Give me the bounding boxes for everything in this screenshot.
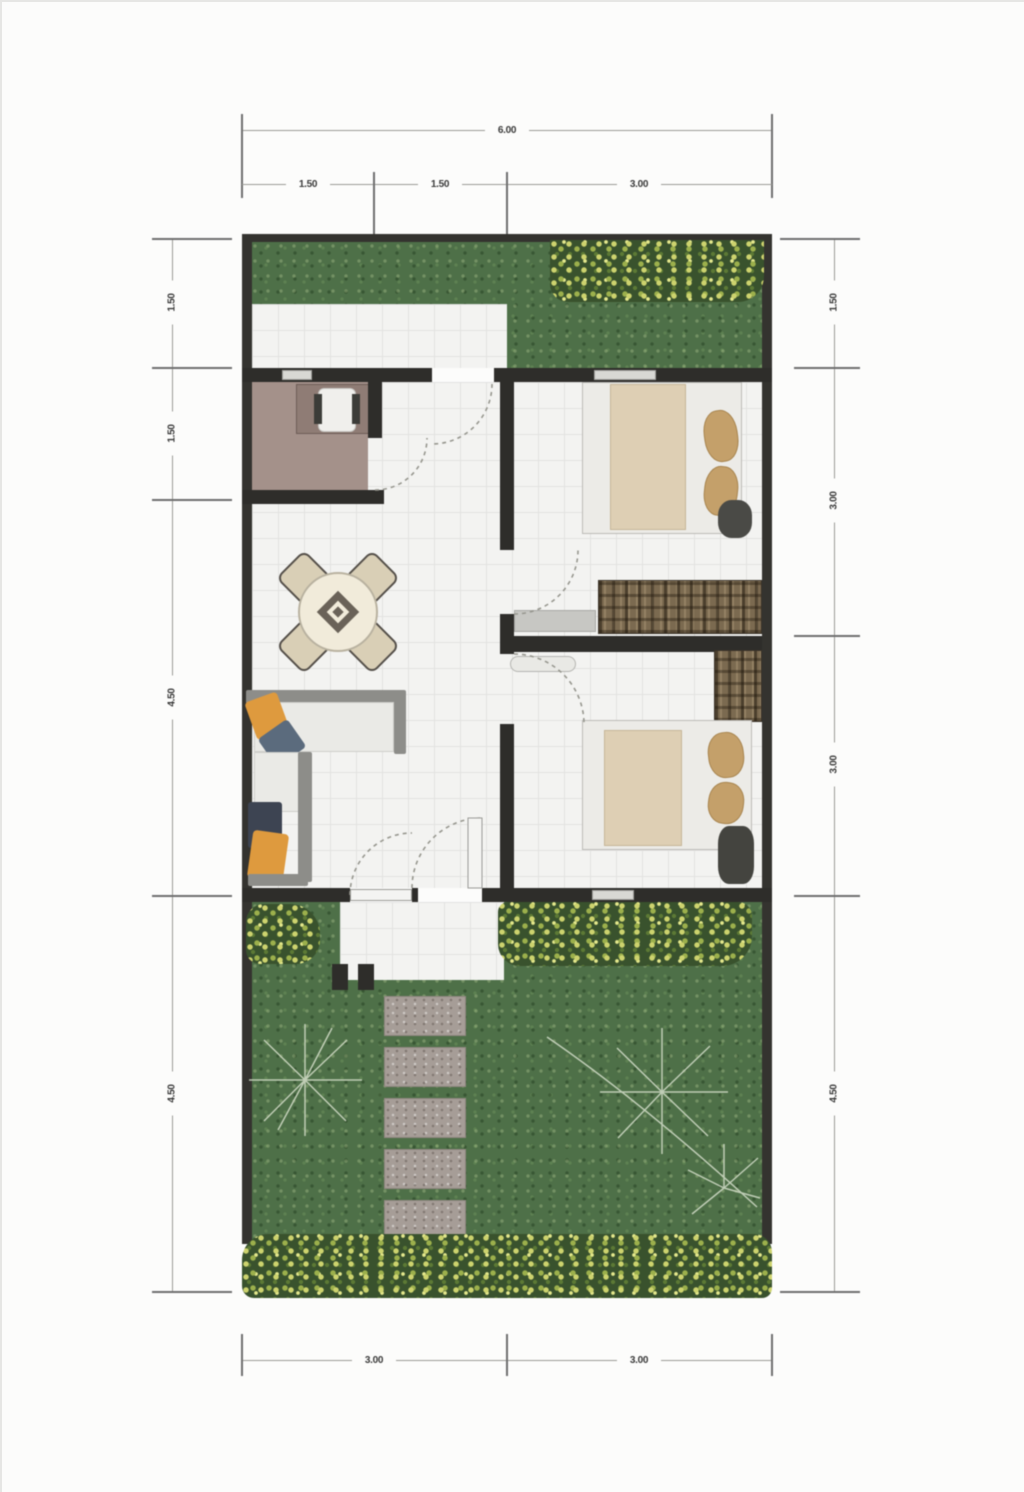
dim-bottom-seg1-label: 3.00 (352, 1354, 396, 1367)
bedroom1-door-swing-icon (514, 550, 578, 614)
entry-door-leaf (468, 818, 482, 888)
dim-left-seg3-label: 4.50 (166, 676, 179, 720)
dim-bottom-tick-left (241, 1334, 243, 1376)
plant-branch-line (547, 1037, 757, 1207)
dim-right-seg1-label: 1.50 (828, 281, 841, 325)
floor-plan-scene: 6.00 1.50 1.50 3.00 3.00 3.00 1.50 1.50 … (2, 2, 1024, 1492)
dim-top-seg2-label: 1.50 (418, 178, 462, 191)
floor-plan-page: 6.00 1.50 1.50 3.00 3.00 3.00 1.50 1.50 … (0, 0, 1024, 1492)
dim-bottom-tick-mid (506, 1334, 508, 1376)
dim-left-tick-4 (152, 895, 232, 897)
dim-left-tick-1 (152, 238, 232, 240)
dim-left-tick-2 (152, 367, 232, 369)
back-door-swing-icon (432, 384, 492, 444)
dim-left-seg1-label: 1.50 (166, 281, 179, 325)
dim-top-tick-2 (506, 172, 508, 234)
dim-top-total-label: 6.00 (485, 124, 529, 137)
overlay-drawing (2, 2, 1024, 1492)
dim-right-seg3-label: 3.00 (828, 743, 841, 787)
garden-plant-sketches (249, 1024, 760, 1214)
dim-left-seg2-label: 1.50 (166, 412, 179, 456)
bedroom2-door-swing-icon (514, 654, 584, 724)
dim-right-tick-4 (794, 895, 860, 897)
dim-right-tick-5 (780, 1291, 860, 1293)
dim-left-seg4-label: 4.50 (166, 1072, 179, 1116)
dim-top-seg3-label: 3.00 (617, 178, 661, 191)
dim-right-tick-3 (794, 635, 860, 637)
dim-top-end-tick-left (241, 114, 243, 198)
dim-right-seg2-label: 3.00 (828, 479, 841, 523)
dim-left-tick-3 (152, 499, 232, 501)
deskroom-door-swing-icon (375, 438, 427, 490)
dim-bottom-seg2-label: 3.00 (617, 1354, 661, 1367)
plant-sketch-left-icon (249, 1024, 362, 1136)
dim-right-seg4-label: 4.50 (828, 1072, 841, 1116)
dim-left-line (172, 239, 173, 1292)
dim-top-seg1-label: 1.50 (286, 178, 330, 191)
dim-right-tick-1 (780, 238, 860, 240)
plant-sketch-right-icon (600, 1028, 728, 1154)
door-swing-arcs (350, 384, 584, 895)
dim-top-tick-1 (373, 172, 375, 234)
terrace-door-swing-icon (350, 833, 412, 895)
dim-top-end-tick-right (771, 114, 773, 198)
dim-bottom-tick-right (771, 1334, 773, 1376)
dim-right-tick-2 (794, 367, 860, 369)
dim-left-tick-5 (152, 1291, 232, 1293)
